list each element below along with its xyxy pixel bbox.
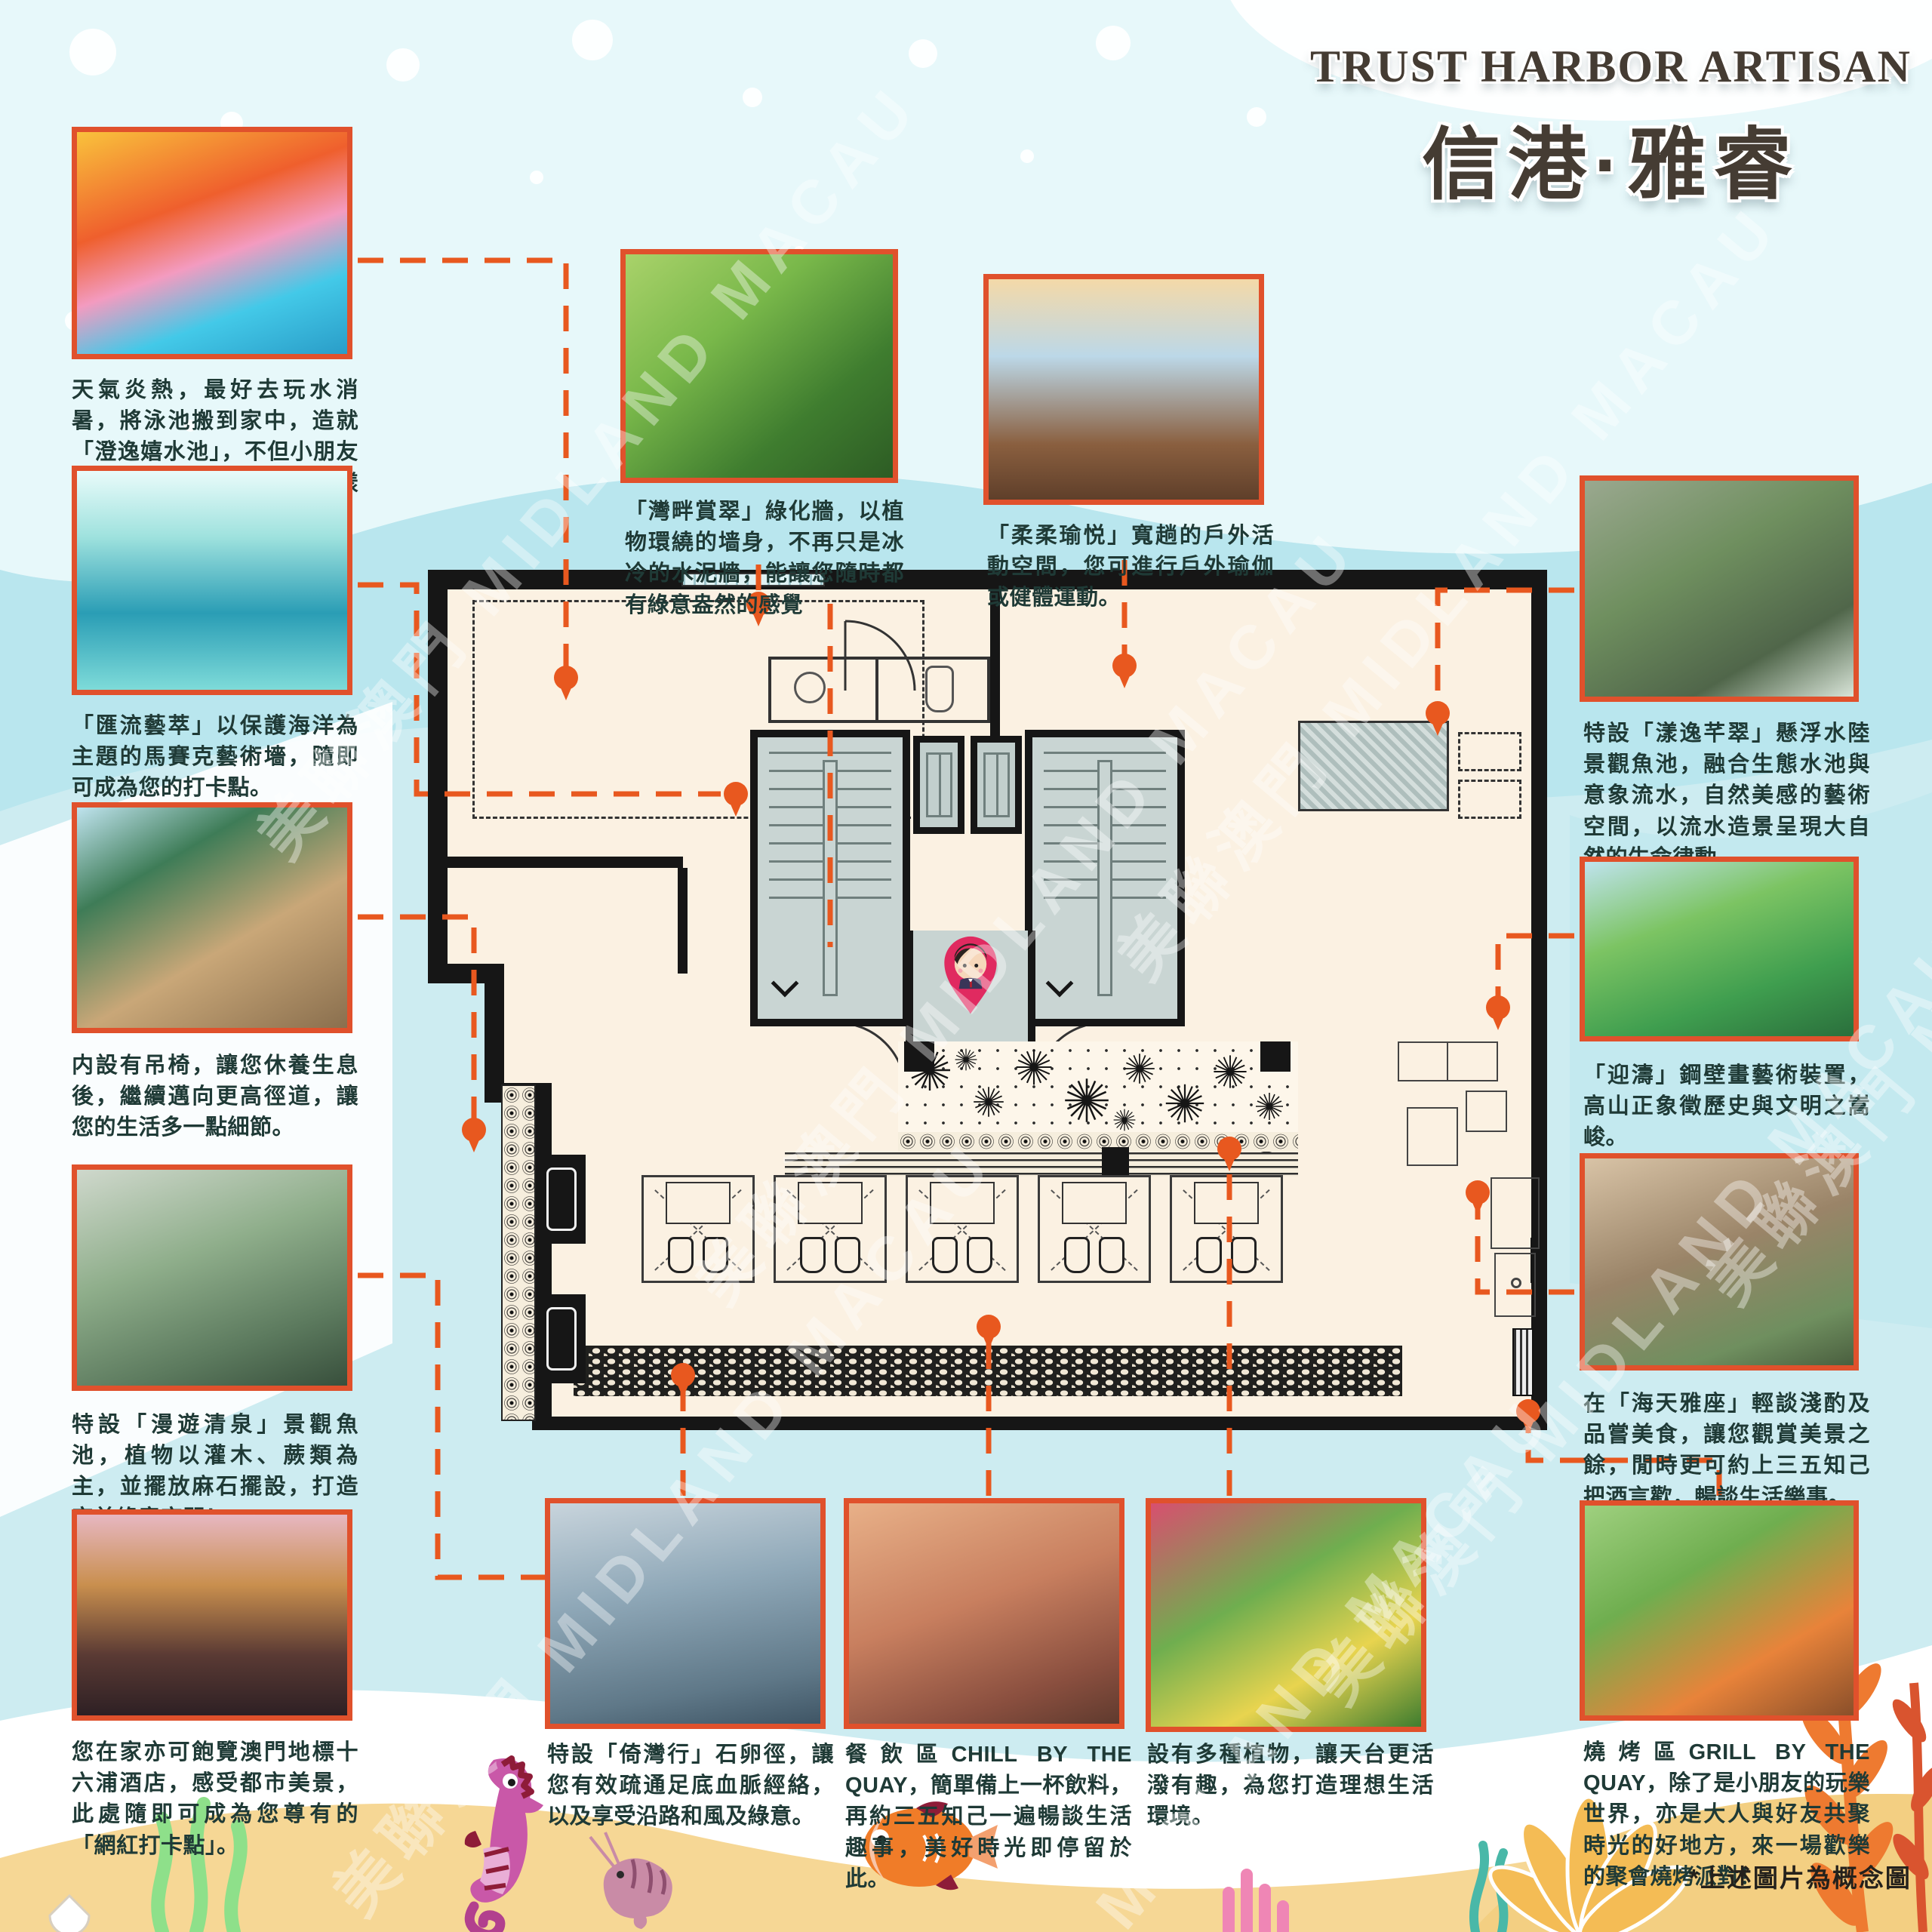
photo-woman-on-hanging-chair <box>72 802 352 1033</box>
brand-logo: TRUST HARBOR ARTISAN 信港·雅睿 <box>1292 15 1930 214</box>
caption-floating-pond: 特設「漾逸芊翠」懸浮水陸景觀魚池，融合生態水池與意象流水，自然美感的藝術空間，以… <box>1583 718 1870 874</box>
photo-vertical-planted-green-wall <box>620 249 898 483</box>
photo-rock-stream-water-feature <box>1580 475 1859 702</box>
concept-image-disclaimer: *上述圖片為概念圖 <box>1689 1858 1912 1894</box>
caption-pebble-path: 特設「倚灣行」石卵徑，讓您有效疏通足底血脈經絡，以及享受沿路和風及綠意。 <box>547 1740 834 1833</box>
photo-kids-playing-in-pool <box>72 127 352 359</box>
photo-barbecue-party <box>1580 1500 1859 1721</box>
caption-sky-lounge: 在「海天雅座」輕談淺酌及品嘗美食，讓您觀賞美景之餘，閒時更可約上三五知己把酒言歡… <box>1583 1389 1870 1513</box>
brand-name-english: TRUST HARBOR ARTISAN <box>1292 41 1930 93</box>
photo-friends-chatting-on-outdoor-sofa <box>1580 1153 1859 1371</box>
caption-green-wall: 「灣畔賞翠」綠化牆，以植物環繞的墙身，不再只是冰冷的水泥牆，能讓您隨時都有綠意盎… <box>625 497 904 621</box>
poster: 美聯澳門 MIDLAND MACAU 美聯澳門 MIDLAND MACAU 美聯… <box>0 0 1932 1932</box>
connector-pins <box>462 592 1540 1600</box>
caption-copper-mural: 「迎濤」鋼壁畫藝術裝置，高山正象徵歷史與文明之嵩峻。 <box>1583 1060 1870 1154</box>
photo-misty-rock-fish-pond <box>72 1164 352 1391</box>
photo-outdoor-yoga-class <box>983 274 1264 505</box>
photo-foot-massage-pebble-path <box>545 1498 826 1729</box>
caption-hotel-view: 您在家亦可飽覽澳門地標十六浦酒店，感受都市美景，此處隨即可成為您尊有的「網紅打卡… <box>72 1737 358 1862</box>
caption-mosaic-wall: 「匯流藝萃」以保護海洋為主題的馬賽克藝術墻，隨即可成為您的打卡點。 <box>72 711 358 804</box>
brand-name-chinese: 信港·雅睿 <box>1292 100 1930 214</box>
photo-ponte16-hotel-at-dusk <box>72 1509 352 1721</box>
photo-ocean-wave-mosaic-art <box>72 466 352 695</box>
caption-planting: 設有多種植物，讓天台更活潑有趣，為您打造理想生活環境。 <box>1147 1740 1434 1833</box>
caption-yoga-deck: 「柔柔瑜悦」寬趟的戶外活動空間，您可進行戶外瑜伽或健體運動。 <box>987 521 1274 614</box>
photo-colorful-flower-bed <box>1146 1498 1426 1732</box>
caption-hanging-chair: 内設有吊椅，讓您休養生息後，繼續邁向更高徑道，讓您的生活多一點細節。 <box>72 1051 358 1144</box>
photo-two-girls-with-drinks <box>844 1498 1124 1729</box>
caption-chill-area: 餐飲區CHILL BY THE QUAY，簡單備上一杯飲料，再約三五知己一遍暢談… <box>845 1740 1132 1895</box>
photo-green-mountain-ridge <box>1580 857 1859 1041</box>
